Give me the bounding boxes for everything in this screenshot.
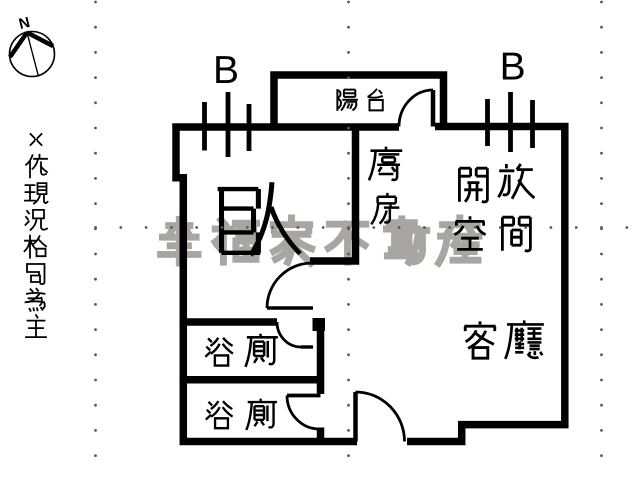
- svg-text:N: N: [17, 14, 32, 33]
- svg-text:B: B: [500, 46, 526, 89]
- svg-text:B: B: [213, 49, 239, 92]
